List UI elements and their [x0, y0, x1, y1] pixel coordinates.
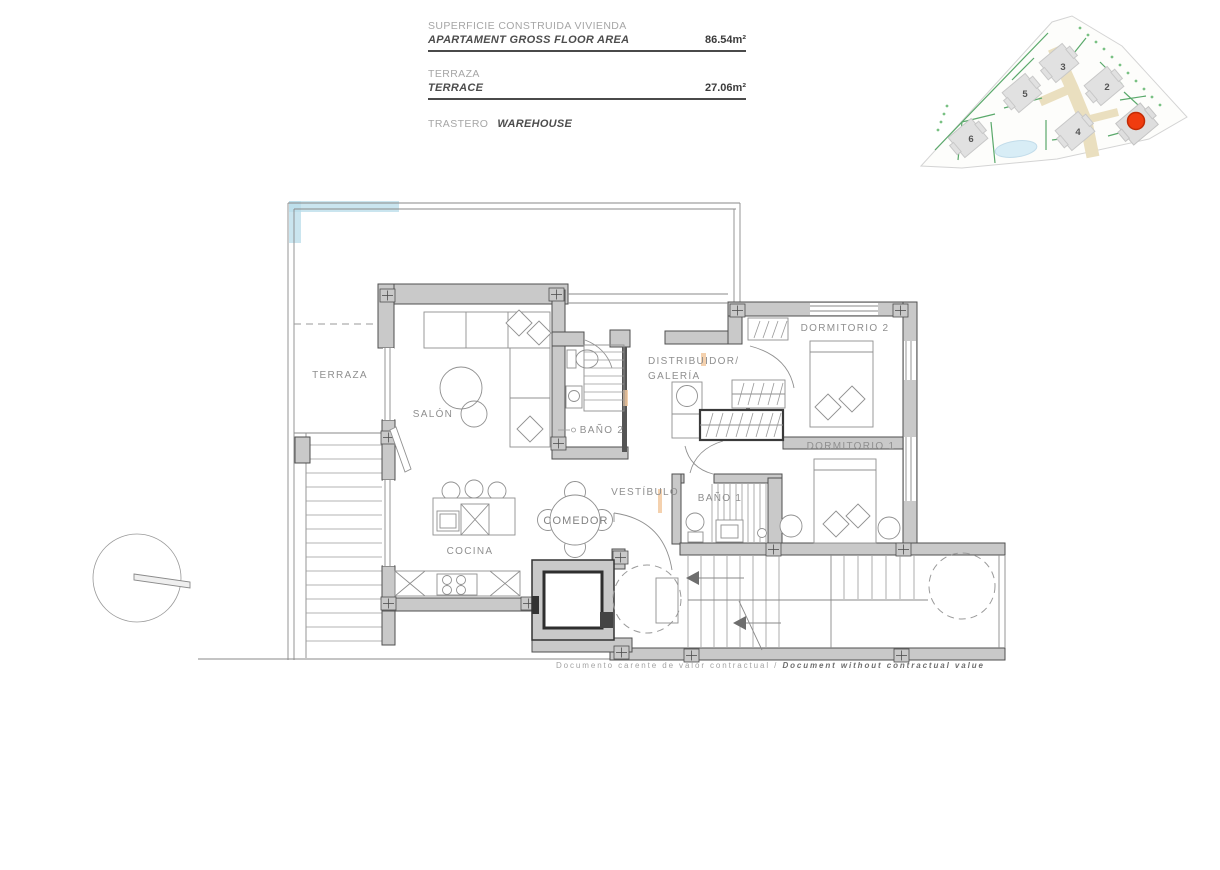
stool — [442, 482, 460, 500]
north-compass — [93, 534, 190, 622]
site-building-2-number: 2 — [1104, 82, 1109, 93]
room-label-comedor: COMEDOR — [543, 515, 608, 527]
site-building-3-number: 3 — [1060, 62, 1065, 73]
room-label-salon: SALÓN — [413, 407, 453, 420]
room-label-terraza: TERRAZA — [312, 370, 368, 381]
room-label-dormitorio2: DORMITORIO 2 — [801, 323, 890, 334]
site-building-5-number: 5 — [1022, 89, 1028, 100]
elevator — [532, 560, 614, 640]
selected-unit-marker — [1128, 113, 1145, 130]
terrace-highlight-left — [289, 201, 301, 243]
disclaimer: Documento carente de valor contractual /… — [556, 661, 985, 670]
site-building-6-number: 6 — [968, 134, 973, 145]
room-label-dormitorio1: DORMITORIO 1 — [807, 441, 896, 452]
floorplan-page: SUPERFICIE CONSTRUIDA VIVIENDA APARTAMEN… — [0, 0, 1220, 870]
room-label-bano1: BAÑO 1 — [698, 491, 742, 504]
bedroom2-bed — [810, 341, 873, 427]
disclaimer-es: Documento carente de valor contractual / — [556, 661, 782, 670]
stool — [488, 482, 506, 500]
turning-circle — [929, 553, 995, 619]
room-label-bano2: BAÑO 2 — [580, 423, 624, 436]
site-plan: 3 5 2 6 4 — [921, 16, 1187, 168]
walls — [295, 284, 1005, 660]
disclaimer-en: Document without contractual value — [782, 661, 984, 670]
kitchen — [395, 480, 520, 596]
exterior-stairs — [306, 433, 382, 658]
sofa — [424, 310, 551, 447]
kitchen-island — [433, 498, 515, 535]
room-label-distribuidor: DISTRIBUIDOR/ — [648, 356, 739, 367]
compass-needle — [134, 574, 190, 588]
stair-direction-arrow — [733, 616, 746, 630]
room-label-vestibulo: VESTÍBULO — [611, 485, 679, 498]
bathroom2-fixtures — [566, 345, 624, 411]
stool — [465, 480, 483, 498]
site-building-4-number: 4 — [1075, 127, 1081, 138]
room-label-cocina: COCINA — [447, 546, 494, 557]
room-label-galeria: GALERÍA — [648, 369, 700, 382]
bedroom1-bed — [780, 459, 900, 543]
floor-plan-drawing: TERRAZA SALÓN BAÑO 2 DISTRIBUIDOR/ GALER… — [0, 0, 1220, 870]
galeria-washbasin — [672, 382, 702, 438]
